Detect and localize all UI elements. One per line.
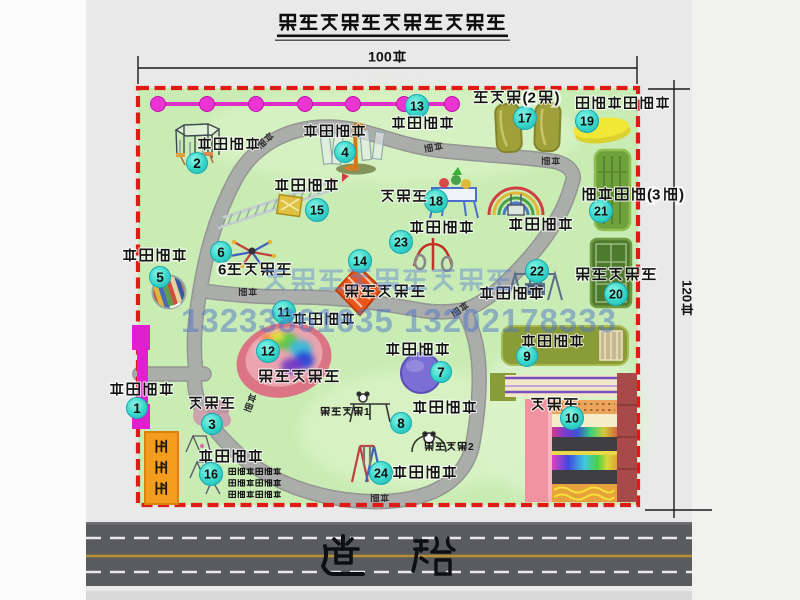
svg-text:(2: (2 [523, 90, 537, 107]
svg-text:6: 6 [218, 262, 226, 279]
svg-text:8: 8 [397, 416, 405, 431]
svg-text:7: 7 [437, 365, 445, 380]
svg-text:21: 21 [594, 205, 608, 219]
svg-text:12: 12 [261, 345, 275, 359]
svg-text:1: 1 [133, 401, 141, 416]
svg-text:4: 4 [341, 145, 349, 160]
svg-text:2: 2 [193, 156, 201, 171]
svg-text:5: 5 [156, 270, 164, 285]
svg-text:): ) [555, 90, 560, 107]
svg-text:22: 22 [530, 265, 544, 279]
svg-text:6: 6 [217, 245, 225, 260]
svg-text:10: 10 [565, 412, 579, 426]
svg-text:24: 24 [374, 467, 388, 481]
svg-text:20: 20 [609, 288, 623, 302]
svg-text:): ) [679, 187, 684, 204]
svg-text:23: 23 [394, 236, 408, 250]
svg-text:17: 17 [518, 112, 532, 126]
svg-text:(3: (3 [647, 187, 661, 204]
svg-text:14: 14 [353, 255, 367, 269]
svg-text:13233861635 13202178333: 13233861635 13202178333 [181, 302, 617, 339]
svg-text:19: 19 [580, 115, 594, 129]
svg-text:16: 16 [204, 468, 218, 482]
svg-text:9: 9 [523, 349, 531, 364]
svg-text:15: 15 [310, 204, 324, 218]
svg-text:3: 3 [208, 417, 216, 432]
svg-text:1: 1 [364, 407, 370, 418]
svg-text:13: 13 [410, 100, 424, 114]
svg-text:18: 18 [429, 195, 443, 209]
svg-text:100: 100 [368, 50, 392, 66]
svg-text:2: 2 [468, 442, 474, 453]
svg-text:120: 120 [679, 280, 694, 302]
